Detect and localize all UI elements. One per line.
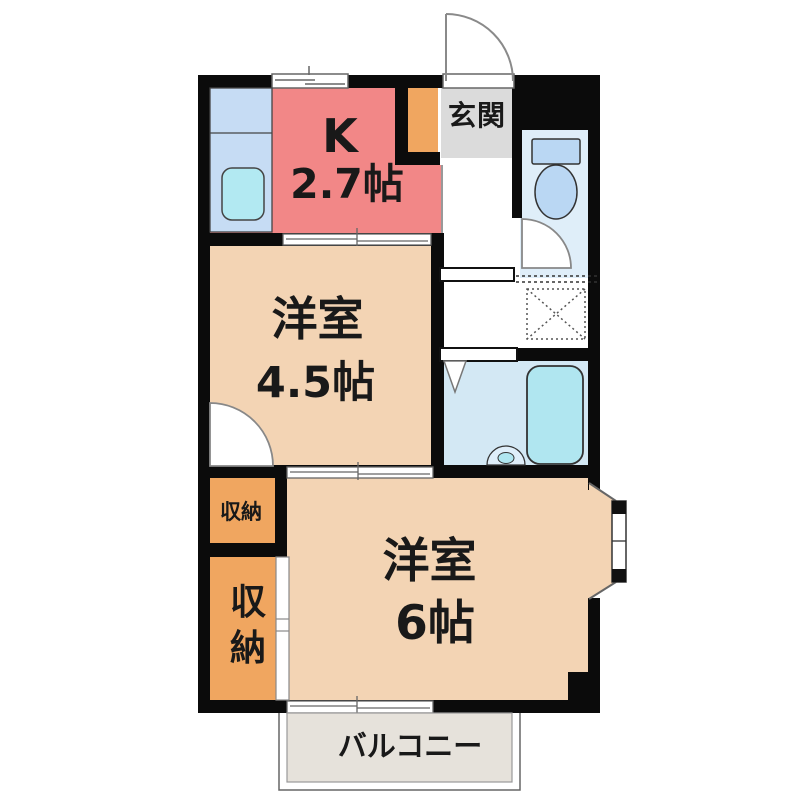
closet-door-arc <box>210 403 273 466</box>
washing-machine-space-icon <box>527 289 585 339</box>
western-room-large-label: 洋室 <box>352 537 507 586</box>
dashed-boundary <box>516 276 597 282</box>
sliding-door-45-6 <box>287 462 433 480</box>
kitchen-sink-icon <box>210 88 272 232</box>
kitchen-window <box>272 66 348 88</box>
sliding-door-k-45 <box>283 228 431 246</box>
entrance-door-arc <box>443 14 514 88</box>
toilet-icon <box>532 139 580 219</box>
sliding-window <box>287 696 433 713</box>
western-room-small-label: 洋室 <box>240 295 395 343</box>
washbasin-icon <box>487 446 525 465</box>
floor-plan: K 2.7帖 玄関 洋室 4.5帖 洋室 6帖 収納 収納 バルコニー <box>0 0 800 800</box>
storage-lower-label: 収納 <box>228 580 268 672</box>
hall-door <box>440 268 514 281</box>
storage-upper-label: 収納 <box>206 501 276 523</box>
folding-door-icon <box>444 361 466 392</box>
washroom-door <box>440 348 517 361</box>
western-room-large-size: 6帖 <box>375 599 495 648</box>
bathtub-icon <box>527 366 583 464</box>
kitchen-label: K <box>300 112 380 160</box>
entrance-label: 玄関 <box>440 101 514 130</box>
kitchen-size-label: 2.7帖 <box>272 163 422 206</box>
balcony-label: バルコニー <box>310 731 510 761</box>
fixtures-layer <box>0 0 800 800</box>
closet-sliding-panel <box>276 557 289 700</box>
western-room-small-size: 4.5帖 <box>233 361 398 406</box>
bay-window <box>589 483 626 599</box>
toilet-door-arc <box>522 219 571 268</box>
